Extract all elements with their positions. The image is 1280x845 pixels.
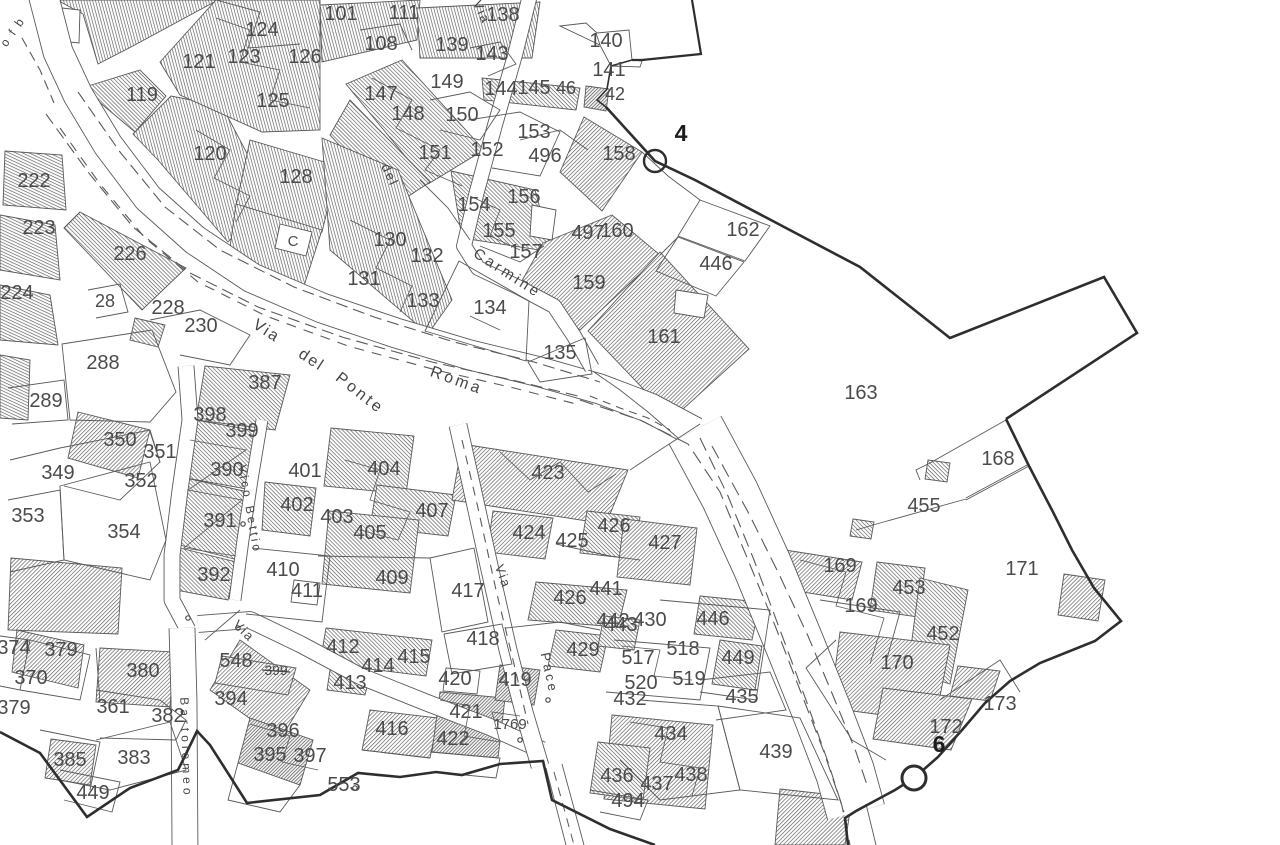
- svg-text:399: 399: [225, 420, 258, 442]
- svg-text:423: 423: [531, 462, 564, 484]
- svg-text:417: 417: [451, 580, 484, 602]
- svg-text:144: 144: [484, 78, 517, 100]
- svg-text:150: 150: [445, 104, 478, 126]
- svg-text:155: 155: [482, 220, 515, 242]
- svg-text:101: 101: [324, 3, 357, 25]
- svg-text:455: 455: [907, 495, 940, 517]
- svg-text:173: 173: [983, 693, 1016, 715]
- svg-text:379: 379: [44, 639, 77, 661]
- svg-text:170: 170: [880, 652, 913, 674]
- svg-text:432: 432: [613, 688, 646, 710]
- svg-text:42: 42: [605, 84, 625, 104]
- svg-text:430: 430: [633, 609, 666, 631]
- svg-text:152: 152: [470, 139, 503, 161]
- svg-text:380: 380: [126, 660, 159, 682]
- svg-text:421: 421: [449, 701, 482, 723]
- svg-text:351: 351: [143, 441, 176, 463]
- svg-text:407: 407: [415, 500, 448, 522]
- svg-text:409: 409: [375, 567, 408, 589]
- svg-text:111: 111: [389, 2, 419, 24]
- svg-text:171: 171: [1005, 558, 1038, 580]
- svg-text:394: 394: [214, 688, 247, 710]
- svg-text:140: 140: [589, 30, 622, 52]
- svg-text:453: 453: [892, 577, 925, 599]
- svg-text:288: 288: [86, 352, 119, 374]
- svg-text:437: 437: [640, 773, 673, 795]
- svg-text:452: 452: [926, 623, 959, 645]
- svg-text:126: 126: [288, 46, 321, 68]
- svg-text:415: 415: [397, 646, 430, 668]
- svg-text:119: 119: [126, 84, 158, 106]
- svg-text:548: 548: [219, 650, 252, 672]
- svg-text:411: 411: [291, 580, 323, 602]
- svg-text:C: C: [288, 233, 299, 250]
- svg-text:222: 222: [17, 170, 50, 192]
- svg-text:160: 160: [600, 220, 633, 242]
- svg-text:163: 163: [844, 382, 877, 404]
- svg-text:449: 449: [721, 647, 754, 669]
- svg-text:441: 441: [589, 578, 622, 600]
- svg-text:424: 424: [512, 522, 545, 544]
- svg-text:228: 228: [151, 297, 184, 319]
- svg-text:145: 145: [517, 77, 550, 99]
- svg-text:121: 121: [182, 51, 215, 73]
- svg-text:438: 438: [674, 764, 707, 786]
- svg-text:391: 391: [203, 510, 236, 532]
- svg-text:517: 517: [621, 647, 654, 669]
- svg-text:133: 133: [406, 290, 439, 312]
- svg-text:496: 496: [528, 145, 561, 167]
- svg-text:1769: 1769: [493, 716, 526, 733]
- svg-text:157: 157: [509, 241, 542, 263]
- svg-text:420: 420: [438, 668, 471, 690]
- svg-text:519: 519: [672, 668, 705, 690]
- svg-text:383: 383: [117, 747, 150, 769]
- svg-text:151: 151: [418, 142, 451, 164]
- svg-text:395: 395: [253, 744, 286, 766]
- svg-text:426: 426: [597, 515, 630, 537]
- svg-text:518: 518: [666, 638, 699, 660]
- svg-text:402: 402: [280, 494, 313, 516]
- svg-text:426: 426: [553, 587, 586, 609]
- svg-text:162: 162: [726, 219, 759, 241]
- svg-text:132: 132: [410, 245, 443, 267]
- svg-text:156: 156: [507, 186, 540, 208]
- svg-text:379: 379: [0, 697, 31, 719]
- svg-text:230: 230: [184, 315, 217, 337]
- svg-text:416: 416: [375, 718, 408, 740]
- svg-text:427: 427: [648, 532, 681, 554]
- svg-text:120: 120: [193, 143, 226, 165]
- svg-text:289: 289: [29, 390, 62, 412]
- svg-text:154: 154: [457, 194, 490, 216]
- svg-text:159: 159: [572, 272, 605, 294]
- svg-text:354: 354: [107, 521, 140, 543]
- svg-text:397: 397: [293, 745, 326, 767]
- svg-text:349: 349: [41, 462, 74, 484]
- svg-text:361: 361: [96, 696, 129, 718]
- svg-text:396: 396: [266, 720, 299, 742]
- svg-text:413: 413: [333, 672, 366, 694]
- svg-text:374: 374: [0, 637, 31, 659]
- svg-text:149: 149: [430, 71, 463, 93]
- svg-text:387: 387: [248, 372, 281, 394]
- svg-text:494: 494: [611, 790, 644, 812]
- svg-text:128: 128: [279, 166, 312, 188]
- svg-text:398: 398: [193, 404, 226, 426]
- svg-text:446: 446: [696, 608, 729, 630]
- svg-text:392: 392: [197, 564, 230, 586]
- svg-text:139: 139: [435, 34, 468, 56]
- svg-text:153: 153: [517, 121, 550, 143]
- svg-text:158: 158: [602, 143, 635, 165]
- svg-text:6: 6: [933, 731, 946, 757]
- svg-text:350: 350: [103, 429, 136, 451]
- svg-text:161: 161: [647, 326, 680, 348]
- svg-text:143: 143: [475, 43, 508, 65]
- svg-text:108: 108: [364, 33, 397, 55]
- svg-text:429: 429: [566, 639, 599, 661]
- svg-text:4: 4: [675, 120, 688, 146]
- svg-text:353: 353: [11, 505, 44, 527]
- svg-text:168: 168: [981, 448, 1014, 470]
- svg-text:223: 223: [22, 217, 55, 239]
- svg-text:553: 553: [327, 774, 360, 796]
- svg-text:425: 425: [555, 530, 588, 552]
- svg-text:169: 169: [823, 555, 856, 577]
- svg-text:449: 449: [76, 782, 109, 804]
- svg-text:135: 135: [543, 342, 576, 364]
- svg-text:401: 401: [288, 460, 321, 482]
- svg-text:446: 446: [699, 253, 732, 275]
- svg-text:435: 435: [725, 686, 758, 708]
- svg-text:385: 385: [53, 749, 86, 771]
- svg-text:352: 352: [124, 470, 157, 492]
- svg-text:436: 436: [600, 765, 633, 787]
- svg-text:224: 224: [0, 282, 33, 304]
- svg-text:418: 418: [466, 628, 499, 650]
- svg-text:226: 226: [113, 243, 146, 265]
- svg-text:169: 169: [844, 595, 877, 617]
- svg-text:28: 28: [95, 291, 115, 311]
- svg-text:147: 147: [364, 83, 397, 105]
- svg-text:404: 404: [367, 458, 400, 480]
- svg-text:141: 141: [592, 59, 625, 81]
- svg-text:412: 412: [326, 636, 359, 658]
- svg-text:419: 419: [498, 669, 531, 691]
- svg-text:131: 131: [347, 268, 380, 290]
- svg-text:403: 403: [320, 506, 353, 528]
- svg-text:134: 134: [473, 297, 506, 319]
- svg-text:46: 46: [556, 78, 576, 98]
- svg-text:442: 442: [596, 610, 629, 632]
- svg-text:370: 370: [14, 667, 47, 689]
- svg-text:439: 439: [759, 741, 792, 763]
- svg-text:410: 410: [266, 559, 299, 581]
